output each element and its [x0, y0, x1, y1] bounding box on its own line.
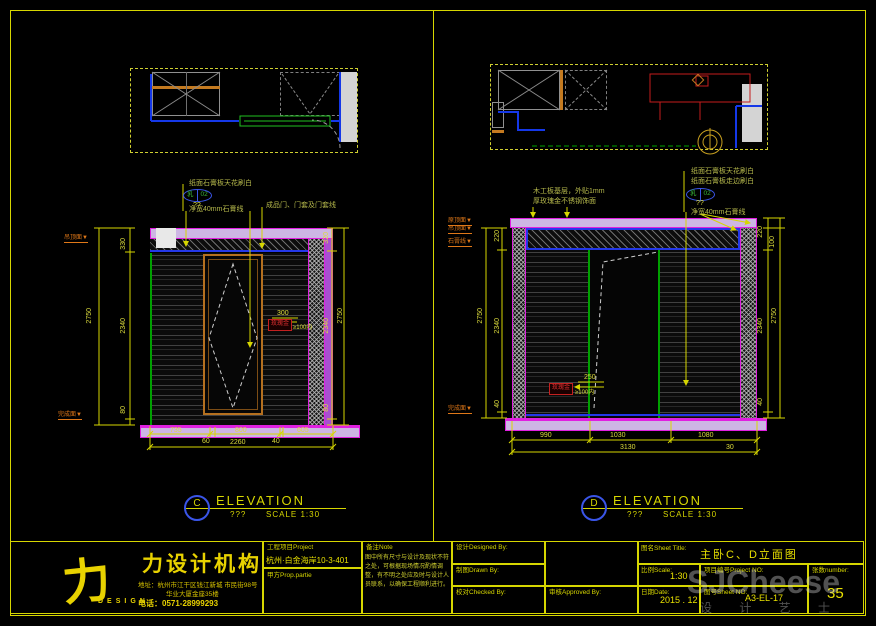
elev-c-red-tag-note: ≥100内: [293, 325, 312, 332]
elev-d-title: ELEVATION: [613, 493, 702, 508]
elev-d-letter: D: [583, 498, 605, 509]
elev-c-dim-bottom-1: 800: [235, 427, 247, 434]
elev-c-title-bubble: C: [184, 495, 210, 521]
elev-d-note-left-1: 木工板基层，外贴1mm: [533, 188, 605, 196]
elev-c-level-marker-bottom: 完成面▼: [58, 412, 82, 420]
elev-c-note-cornice: 净宽40mm石膏线: [189, 206, 243, 214]
elev-d-dim-lines: [481, 218, 785, 455]
elev-c-dim-left-0: 330: [120, 238, 127, 250]
elev-d-red-tag: 玫瑰金: [549, 383, 573, 395]
elev-c-dim-left-2: 80: [120, 406, 127, 414]
keyplan-d-compass: [698, 128, 722, 154]
elev-d-note-ceiling: 纸面石膏板天花刷白: [691, 168, 754, 176]
elev-c-dim-right-0: 320: [323, 232, 330, 244]
elev-c-title: ELEVATION: [216, 493, 305, 508]
keyplan-c-x-lines: [152, 72, 338, 116]
elev-d-dim-bottom-0: 990: [540, 432, 552, 439]
elev-c-red-tag: 玫瑰金: [268, 319, 292, 331]
elev-d-dim-right-2: 2340: [757, 318, 764, 334]
elev-c-dim-right-total: 2750: [337, 308, 344, 324]
elev-d-dim-bottom-right: 30: [726, 444, 734, 451]
elev-c-dim-bottom2-2: 40: [272, 438, 280, 445]
elev-d-note-cornice: 净宽40mm石膏线: [691, 209, 745, 217]
elev-d-dim-bottom-1: 1030: [610, 432, 626, 439]
elev-d-dim-left-1: 2340: [494, 318, 501, 334]
keyplan-c-bed-head: [240, 116, 330, 126]
elev-c-note-door: 成品门、门套及门套线: [266, 202, 336, 210]
elev-d-red-tag-note: ≥100内: [575, 390, 594, 397]
elev-c-dim-bottom2-0: 60: [202, 438, 210, 445]
elev-c-dim-lines: [94, 228, 349, 450]
watermark-sub: 设 计 艺 士: [700, 599, 842, 616]
elev-d-level-marker-1: 吊顶面▼: [448, 226, 472, 234]
elev-d-note-left-2: 厚玫瑰金不锈钢饰面: [533, 198, 596, 206]
elev-d-level-marker-bottom: 完成面▼: [448, 406, 472, 414]
elev-d-scale: SCALE 1:30: [663, 510, 717, 519]
elev-d-dim-bottom-total: 3130: [620, 444, 636, 451]
elev-c-dim-left-total: 2750: [86, 308, 93, 324]
elev-d-dim-left-0: 220: [494, 230, 501, 242]
watermark-main: SJCheese: [687, 564, 840, 601]
linework-overlay: [0, 0, 876, 626]
elev-d-red-tag-dim: 250: [584, 374, 596, 381]
elev-d-dim-bottom-2: 1080: [698, 432, 714, 439]
material-tag-prefix: 乳: [687, 189, 700, 200]
elev-d-dim-left-2: 40: [494, 400, 501, 408]
elev-d-dashed-swing: [594, 252, 658, 408]
material-tag-code: 02: [197, 190, 211, 201]
elev-c-dim-bottom-2: 605: [297, 427, 309, 434]
elev-c-level-marker-top: 吊顶面▼: [64, 235, 88, 243]
elev-c-material-tag: 乳 02: [183, 189, 212, 202]
elev-c-dim-right-2: 80: [323, 404, 330, 412]
elev-c-note-ceiling: 纸面石膏板天花刷白: [189, 180, 252, 188]
elev-c-dim-bottom2-total: 2260: [230, 439, 246, 446]
elev-d-dim-right-1: 100: [769, 236, 776, 248]
drawing-sheet: 纸面石膏板天花刷白 乳 02 ?? 净宽40mm石膏线 成品门、门套及门套线 吊…: [0, 0, 876, 626]
keyplan-c-door-swing: [312, 120, 340, 148]
keyplan-c-walls: [151, 72, 340, 142]
elev-d-dim-left-total: 2750: [477, 308, 484, 324]
elev-d-tag-query: ??: [696, 200, 704, 207]
elev-c-subtitle: ???: [230, 510, 246, 519]
elev-d-dim-right-total: 2750: [771, 308, 778, 324]
elev-c-dim-bottom-0: 735: [170, 427, 182, 434]
elev-d-subtitle: ???: [627, 510, 643, 519]
elev-d-level-marker-0: 原顶面▼: [448, 218, 472, 226]
elev-c-dim-right-1: 2340: [323, 318, 330, 334]
elev-c-letter: C: [186, 498, 208, 509]
elev-c-red-tag-dim: 300: [277, 310, 289, 317]
elev-c-dim-left-1: 2340: [120, 318, 127, 334]
elev-d-level-marker-2: 石膏线▼: [448, 239, 472, 247]
elev-d-dim-right-3: 40: [757, 398, 764, 406]
elev-c-scale: SCALE 1:30: [266, 510, 320, 519]
elev-d-note-edge: 纸面石膏板走边刷白: [691, 178, 754, 186]
material-tag-code: 02: [700, 189, 714, 200]
elev-d-dim-right-0: 220: [757, 226, 764, 238]
elev-d-title-bubble: D: [581, 495, 607, 521]
keyplan-d-x-lines: [498, 70, 607, 110]
material-tag-prefix: 乳: [184, 190, 197, 201]
